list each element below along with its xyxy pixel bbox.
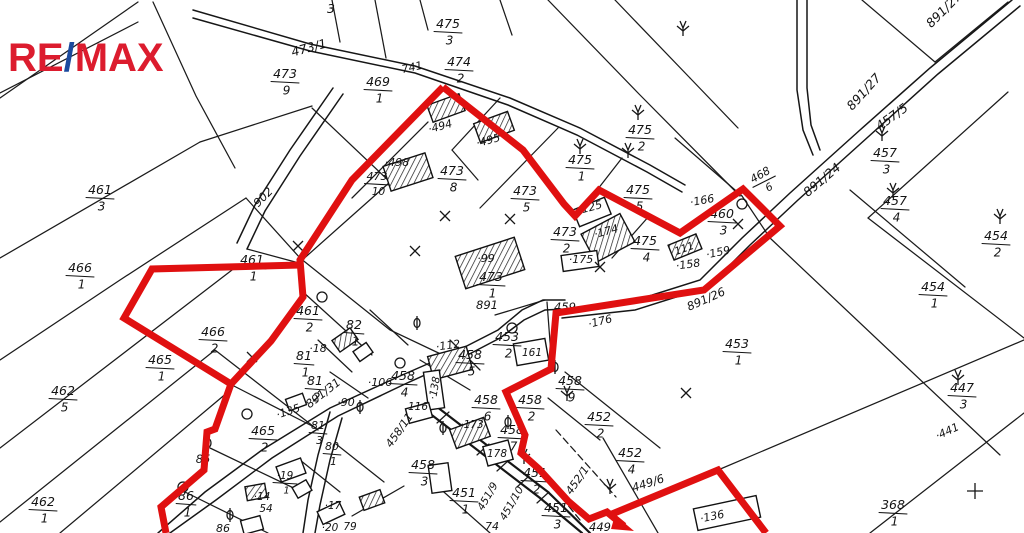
- parcel-label: 449: [589, 520, 611, 533]
- parcel-number-numerator: 457: [883, 193, 907, 208]
- parcel-number-denominator: 1: [352, 335, 360, 349]
- parcel-number: ·106: [368, 376, 393, 389]
- parcel-label: 4585: [456, 347, 485, 379]
- parcel-number: 891/27: [843, 70, 884, 113]
- parcel-label: 86: [216, 522, 230, 533]
- parcel-label: 4625: [49, 383, 78, 415]
- parcel-number-denominator: 2: [261, 441, 269, 455]
- road-edge: [562, 6, 1020, 318]
- parcel-number: 891/24: [800, 160, 843, 200]
- boundary-line: [850, 190, 965, 287]
- parcel-label: 4742: [445, 54, 474, 86]
- circle-icon: [242, 409, 252, 419]
- parcel-number: 54: [259, 503, 272, 515]
- boundary-mark: [293, 241, 303, 251]
- parcel-label: ·20: [322, 522, 339, 533]
- parcel-number-numerator: 466: [68, 260, 92, 275]
- parcel-number-numerator: 462: [31, 494, 55, 509]
- parcel-label: 891/27: [923, 0, 965, 31]
- parcel-label: 451/9: [475, 480, 501, 512]
- parcel-number-numerator: 82: [346, 317, 362, 332]
- parcel-label: 178: [487, 448, 507, 460]
- x-icon: [733, 219, 743, 229]
- parcel-number-numerator: 458: [558, 373, 582, 388]
- logo-max: MAX: [75, 38, 164, 78]
- building: [241, 516, 264, 533]
- x-icon: [293, 241, 303, 251]
- parcel-number-numerator: 458: [518, 392, 542, 407]
- parcel-number-denominator: 2: [306, 321, 314, 335]
- parcel-number: ·159: [705, 244, 732, 262]
- parcel-label: ·99: [477, 252, 495, 265]
- tree-glyph: [632, 105, 644, 120]
- parcel-label: 4513: [542, 500, 571, 532]
- tree-glyph: [994, 209, 1006, 224]
- circle-icon: [737, 199, 747, 209]
- x-icon: [681, 388, 691, 398]
- parcel-number-denominator: 2: [994, 246, 1002, 260]
- parcel-label: 161: [522, 347, 542, 359]
- parcel-number-denominator: 7: [510, 440, 518, 454]
- x-icon: [410, 246, 420, 256]
- parcel-number-denominator: 1: [578, 170, 586, 184]
- parcel-number: ·494: [427, 117, 454, 136]
- parcel-number-denominator: 3: [720, 224, 728, 238]
- parcel-number-numerator: 473: [440, 163, 464, 178]
- parcel-number: 74: [485, 520, 499, 533]
- parcel-number: 741: [400, 59, 423, 76]
- parcel-number-denominator: 1: [931, 297, 939, 311]
- boundary-line: [500, 0, 512, 35]
- x-icon: [440, 211, 450, 221]
- parcel-number: ·99: [477, 252, 495, 265]
- parcel-number-numerator: 474: [447, 54, 471, 69]
- parcel-label: 4754: [631, 233, 660, 265]
- parcel-number: ·14: [254, 491, 271, 503]
- parcel-label: ·17: [325, 500, 342, 512]
- parcel-number-denominator: 3: [421, 475, 429, 489]
- parcel-label: ·14: [254, 491, 271, 503]
- boundary-line: [675, 138, 742, 196]
- parcel-label: ·158: [675, 256, 701, 272]
- parcel-number-numerator: 80: [325, 440, 339, 453]
- parcel-number-denominator: 1: [250, 270, 258, 284]
- parcel-label: 891/27: [843, 70, 884, 113]
- theta-icon: [414, 316, 420, 330]
- parcel-label: 4753: [434, 16, 463, 48]
- road-edge: [193, 10, 685, 185]
- parcel-label: 801: [323, 440, 342, 468]
- fraction-bar: [273, 483, 298, 485]
- parcel-label: 891/24: [800, 160, 843, 200]
- parcel-label: 4752: [626, 122, 655, 154]
- parcel-label: 4691: [364, 74, 393, 106]
- parcel-label: 458/11: [383, 411, 416, 450]
- highlight-arrowhead: [611, 515, 634, 531]
- parcel-number: 86: [216, 522, 230, 533]
- boundary-mark: [733, 219, 743, 229]
- circle-glyph: [395, 358, 405, 368]
- parcel-label: ·173: [460, 419, 483, 431]
- circle-glyph: [317, 292, 327, 302]
- parcel-number-numerator: 465: [148, 352, 172, 367]
- parcel-number-denominator: 3: [960, 398, 968, 412]
- tree-icon: [677, 21, 689, 36]
- parcel-number: ·90: [337, 396, 355, 409]
- parcel-label: ·106: [368, 376, 393, 389]
- parcel-number-numerator: 466: [201, 324, 225, 339]
- parcel-number: 178: [487, 448, 507, 460]
- boundary-mark: [681, 388, 691, 398]
- parcel-number-denominator: 8: [450, 181, 458, 195]
- parcel-number: 116: [408, 401, 428, 413]
- tree-icon: [632, 105, 644, 120]
- parcel-number-denominator: 2: [597, 427, 605, 441]
- highlighted-property-boundary: [124, 87, 780, 533]
- boundary-line: [615, 0, 690, 78]
- parcel-number-numerator: 473: [479, 269, 503, 284]
- parcel-number: ·20: [322, 522, 339, 533]
- logo-slash-icon: /: [64, 38, 75, 78]
- parcel-number-numerator: 458: [458, 347, 482, 362]
- parcel-number-denominator: 4: [643, 251, 651, 265]
- parcel-number-denominator: 2: [211, 342, 219, 356]
- parcel-number-numerator: 453: [495, 329, 519, 344]
- boundary-line: [375, 0, 386, 58]
- parcel-number: ·175: [569, 253, 594, 266]
- parcel-label: 3: [327, 1, 335, 16]
- parcel-number: 449: [589, 520, 611, 533]
- parcel-number: 891/27: [923, 0, 965, 31]
- parcel-number-numerator: 475: [436, 16, 460, 31]
- parcel-label: 54: [259, 503, 272, 515]
- parcel-label: 4511: [450, 485, 479, 517]
- parcel-number: 79: [343, 521, 357, 533]
- parcel-label: 47310: [364, 170, 390, 198]
- parcel-number-denominator: 2: [528, 410, 536, 424]
- parcel-number-numerator: 475: [633, 233, 657, 248]
- tree-icon: [994, 209, 1006, 224]
- parcel-label: 4524: [616, 445, 645, 477]
- circle-icon: [317, 292, 327, 302]
- parcel-label: 4739: [271, 66, 300, 98]
- parcel-number-numerator: 458: [411, 457, 435, 472]
- parcel-number-denominator: 1: [330, 456, 337, 468]
- parcel-label: 457/5: [873, 100, 911, 133]
- boundary-line: [420, 0, 428, 30]
- boundary-line: [370, 310, 408, 345]
- boundary-line: [718, 340, 1024, 470]
- parcel-number-numerator: 458: [391, 368, 415, 383]
- parcel-label: 4652: [249, 423, 278, 455]
- logo-re: RE: [8, 38, 64, 78]
- parcel-number-numerator: 473: [553, 224, 577, 239]
- parcel-label: 4731: [477, 269, 506, 301]
- parcel-number-numerator: 447: [950, 380, 974, 395]
- parcel-number-denominator: 3: [554, 518, 562, 532]
- parcel-number-numerator: 454: [921, 279, 945, 294]
- building-outline: [359, 490, 384, 511]
- boundary-line: [232, 385, 316, 428]
- parcel-number-numerator: 81: [296, 348, 312, 363]
- parcel-number: ·158: [675, 256, 701, 272]
- boundary-mark: [410, 246, 420, 256]
- tree-glyph: [677, 21, 689, 36]
- parcel-number: 161: [522, 347, 542, 359]
- parcel-number-numerator: 461: [88, 182, 112, 197]
- parcel-number-denominator: 1: [489, 287, 497, 301]
- parcel-number-numerator: 453: [725, 336, 749, 351]
- parcel-number: 457/5: [873, 100, 911, 133]
- parcel-number: ·17: [325, 500, 342, 512]
- parcel-number-numerator: 451: [452, 485, 476, 500]
- parcel-number-numerator: 475: [568, 152, 592, 167]
- parcel-number-denominator: 1: [283, 486, 289, 497]
- parcel-number-denominator: 1: [735, 354, 743, 368]
- parcel-number-denominator: 2: [457, 72, 465, 86]
- parcel-number-denominator: 5: [468, 365, 476, 379]
- circle-glyph: [737, 199, 747, 209]
- parcel-label: 4751: [566, 152, 595, 184]
- parcel-label: 4613: [86, 182, 115, 214]
- boundary-line: [690, 78, 738, 128]
- building-outline: [241, 516, 264, 533]
- parcel-number-denominator: 2: [638, 140, 646, 154]
- parcel-number-denominator: 1: [158, 370, 166, 384]
- boundary-line: [200, 106, 312, 142]
- parcel-number-numerator: 475: [626, 182, 650, 197]
- parcel-label: 4732: [551, 224, 580, 256]
- parcel-number: ·441: [933, 420, 961, 442]
- parcel-number-denominator: 10: [372, 186, 386, 198]
- boundary-mark: [505, 214, 515, 224]
- road-edge: [247, 94, 343, 249]
- parcel-label: 74: [485, 520, 499, 533]
- boundary-line: [862, 0, 935, 62]
- parcel-number-denominator: 3: [316, 435, 323, 447]
- x-icon: [505, 214, 515, 224]
- parcel-label: 4621: [29, 494, 58, 526]
- parcel-number-denominator: 1: [184, 506, 192, 520]
- grid-cross: [967, 483, 983, 499]
- parcel-number-denominator: 9: [568, 391, 576, 405]
- remax-logo: RE/MAX: [8, 38, 164, 78]
- parcel-number-numerator: 465: [251, 423, 275, 438]
- parcel-label: 3681: [879, 497, 908, 529]
- parcel-number-numerator: 452: [618, 445, 642, 460]
- parcel-label: ·441: [933, 420, 961, 442]
- boundary-line: [770, 238, 1000, 455]
- parcel-label: 4661: [66, 260, 95, 292]
- parcel-number: ·498: [385, 156, 410, 169]
- parcel-number-numerator: 454: [984, 228, 1008, 243]
- parcel-number-denominator: 9: [283, 84, 291, 98]
- parcel-label: 4589: [556, 373, 585, 405]
- parcel-label: 4542: [982, 228, 1011, 260]
- parcel-number: 3: [327, 1, 335, 16]
- road-edge: [237, 88, 333, 243]
- parcel-number-numerator: 469: [366, 74, 390, 89]
- plus-icon: [967, 483, 983, 499]
- parcel-number: 451/9: [475, 480, 501, 512]
- tree-icon: [604, 479, 616, 494]
- parcel-number-numerator: 462: [51, 383, 75, 398]
- parcel-label: 116: [408, 401, 428, 413]
- parcel-label: 452/1: [563, 464, 592, 497]
- parcel-number: ·173: [460, 419, 483, 431]
- parcel-number-denominator: 4: [401, 386, 409, 400]
- parcel-number-denominator: 4: [628, 463, 636, 477]
- parcel-number: 451/10: [497, 484, 526, 522]
- parcel-number-numerator: 451: [544, 500, 568, 515]
- parcel-number-denominator: 3: [446, 34, 454, 48]
- boundary-line: [0, 270, 232, 448]
- parcel-label: 4541: [919, 279, 948, 311]
- boundary-mark: [440, 211, 450, 221]
- parcel-label: 79: [343, 521, 357, 533]
- parcel-label: ·90: [337, 396, 355, 409]
- parcel-label: 4573: [871, 145, 900, 177]
- parcel-number-denominator: 2: [533, 483, 541, 497]
- parcel-number-numerator: 473: [273, 66, 297, 81]
- parcel-number-denominator: 1: [41, 512, 49, 526]
- parcel-number-numerator: 368: [881, 497, 905, 512]
- parcel-label: 451/10: [497, 484, 526, 522]
- parcel-label: 4662: [199, 324, 228, 356]
- circle-icon: [395, 358, 405, 368]
- cadastral-map-screenshot: 4691347534742473/17414739473104738473547…: [0, 0, 1024, 533]
- parcel-label: 4738: [438, 163, 467, 195]
- parcel-number-numerator: 81: [311, 419, 325, 432]
- parcel-number-numerator: 457: [873, 145, 897, 160]
- parcel-number: 458/11: [383, 411, 416, 450]
- parcel-label: ·175: [569, 253, 594, 266]
- parcel-number-denominator: 6: [763, 181, 775, 195]
- parcel-number-denominator: 5: [523, 201, 531, 215]
- parcel-number-numerator: 473: [367, 170, 388, 183]
- parcel-label: 4584: [389, 368, 418, 400]
- parcel-number-numerator: 475: [628, 122, 652, 137]
- fraction-bar: [323, 454, 342, 456]
- parcel-label: ·494: [427, 117, 454, 136]
- road-edge: [797, 0, 813, 155]
- parcel-number-denominator: 3: [883, 163, 891, 177]
- parcel-number-denominator: 6: [484, 410, 492, 424]
- road-edge: [807, 0, 820, 150]
- tree-glyph: [604, 479, 616, 494]
- parcel-number-denominator: 1: [376, 92, 384, 106]
- boundary-line: [336, 444, 384, 482]
- circle-glyph: [242, 409, 252, 419]
- parcel-number-denominator: 2: [505, 347, 513, 361]
- parcel-number-denominator: 1: [78, 278, 86, 292]
- parcel-number-denominator: 1: [462, 503, 470, 517]
- parcel-label: 4531: [723, 336, 752, 368]
- parcel-label: 741: [400, 59, 423, 76]
- parcel-label: ·498: [385, 156, 410, 169]
- parcel-number-numerator: ·19: [277, 470, 294, 482]
- parcel-number-denominator: 5: [61, 401, 69, 415]
- parcel-number-numerator: 458: [474, 392, 498, 407]
- parcel-label: 4735: [511, 183, 540, 215]
- parcel-number: 452/1: [563, 464, 592, 497]
- fraction-bar: [364, 184, 390, 186]
- parcel-number-denominator: 1: [891, 515, 899, 529]
- parcel-label: 4473: [948, 380, 977, 412]
- parcel-number-numerator: 452: [587, 409, 611, 424]
- parcel-label: ·159: [705, 244, 732, 262]
- parcel-number-numerator: 473: [513, 183, 537, 198]
- parcel-label: 4522: [585, 409, 614, 441]
- parcel-number-denominator: 4: [893, 211, 901, 225]
- parcel-number-denominator: 3: [98, 200, 106, 214]
- building: [359, 490, 384, 511]
- parcel-label: 4651: [146, 352, 175, 384]
